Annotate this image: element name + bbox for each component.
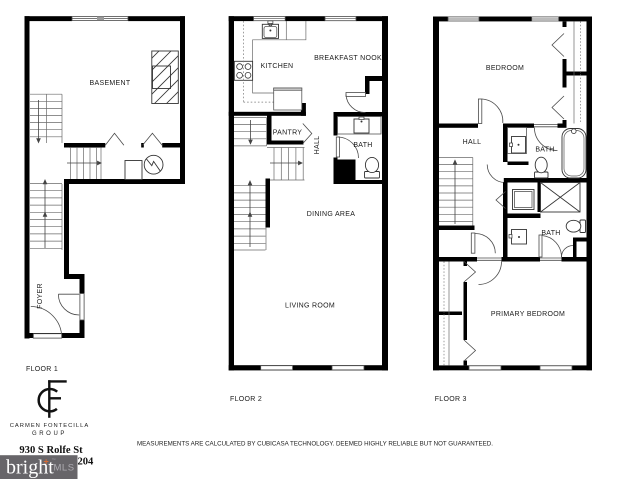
svg-text:FLOOR 1: FLOOR 1 [26, 366, 58, 373]
svg-text:™: ™ [52, 457, 56, 462]
svg-text:BATH: BATH [535, 147, 554, 154]
svg-text:MEASUREMENTS ARE CALCULATED BY: MEASUREMENTS ARE CALCULATED BY CUBICASA … [137, 441, 493, 448]
svg-text:BATH: BATH [541, 230, 560, 237]
svg-text:HALL: HALL [463, 139, 482, 146]
svg-text:BASEMENT: BASEMENT [90, 80, 131, 87]
svg-text:FLOOR 2: FLOOR 2 [230, 396, 262, 403]
svg-text:930 S Rolfe St: 930 S Rolfe St [19, 445, 83, 456]
svg-text:CARMEN FONTECILLA: CARMEN FONTECILLA [10, 423, 90, 429]
svg-text:MLS: MLS [54, 463, 75, 474]
svg-text:HALL: HALL [314, 136, 321, 155]
svg-text:+: + [44, 457, 49, 467]
svg-text:BATH: BATH [353, 142, 372, 149]
svg-text:PRIMARY BEDROOM: PRIMARY BEDROOM [491, 311, 565, 318]
svg-text:FLOOR 3: FLOOR 3 [435, 396, 467, 403]
svg-text:KITCHEN: KITCHEN [261, 63, 294, 70]
svg-text:LIVING ROOM: LIVING ROOM [285, 303, 335, 310]
svg-text:GROUP: GROUP [32, 431, 67, 437]
svg-text:PANTRY: PANTRY [273, 130, 303, 137]
svg-text:FOYER: FOYER [37, 283, 44, 309]
svg-text:BEDROOM: BEDROOM [486, 65, 524, 72]
svg-text:BREAKFAST NOOK: BREAKFAST NOOK [314, 55, 382, 62]
svg-text:DINING AREA: DINING AREA [307, 211, 355, 218]
